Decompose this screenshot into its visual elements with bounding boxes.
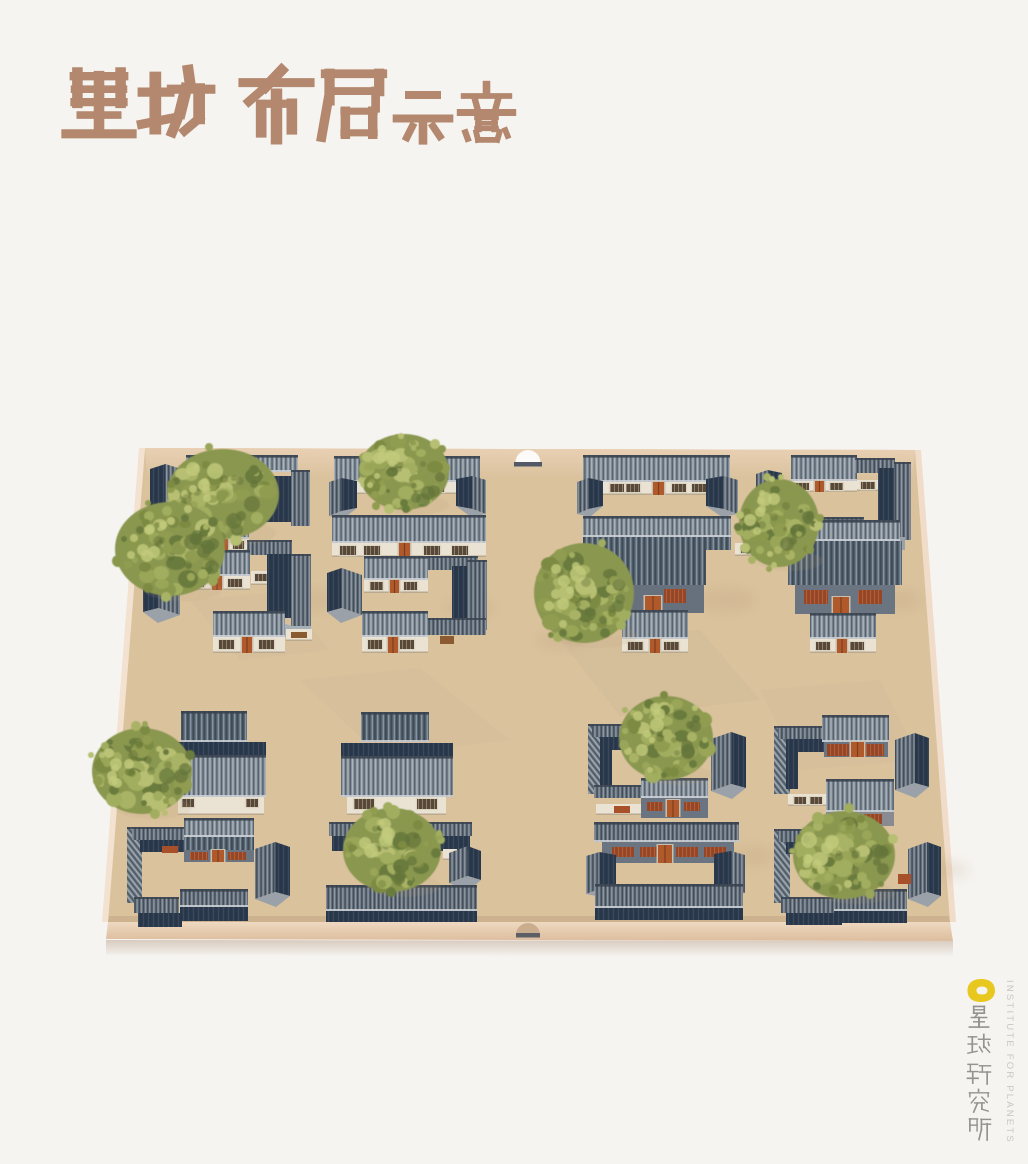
svg-text:INSTITUTE FOR PLANETS: INSTITUTE FOR PLANETS — [1004, 980, 1015, 1144]
